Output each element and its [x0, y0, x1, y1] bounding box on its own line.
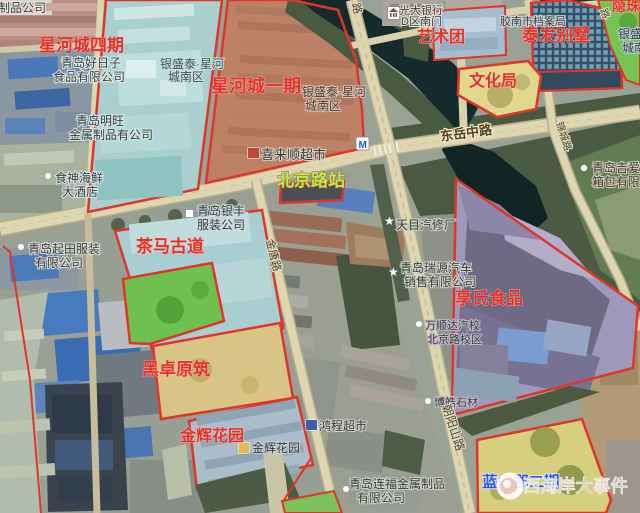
svg-text:青岛明旺: 青岛明旺: [76, 113, 124, 128]
svg-text:有限公司: 有限公司: [35, 256, 83, 270]
svg-text:城南: 城南: [622, 40, 640, 55]
svg-text:青岛瑞源汽车: 青岛瑞源汽车: [400, 260, 472, 275]
svg-text:万顺达汽校: 万顺达汽校: [425, 318, 480, 332]
svg-text:金属制品有公司: 金属制品有公司: [69, 127, 153, 142]
svg-text:文化局: 文化局: [469, 71, 517, 90]
svg-text:北京路校区: 北京路校区: [427, 332, 482, 346]
svg-text:喜来顺超市: 喜来顺超市: [261, 147, 326, 162]
svg-text:青岛吉爱: 青岛吉爱: [592, 160, 640, 175]
svg-text:鸿程超市: 鸿程超市: [319, 418, 367, 433]
svg-text:星河城一期: 星河城一期: [211, 75, 301, 96]
svg-text:西海岸大事件: 西海岸大事件: [523, 476, 628, 496]
svg-text:黑卓原筑: 黑卓原筑: [142, 359, 210, 379]
svg-text:银盛泰·星河: 银盛泰·星河: [160, 56, 224, 71]
svg-text:食品有限公司: 食品有限公司: [53, 69, 125, 84]
svg-text:享氏食品: 享氏食品: [455, 288, 523, 308]
svg-text:D区南门: D区南门: [401, 14, 442, 28]
svg-text:青岛银丰: 青岛银丰: [197, 203, 245, 218]
svg-text:食神海鲜: 食神海鲜: [55, 170, 103, 185]
svg-text:金辉花园: 金辉花园: [179, 426, 244, 445]
svg-text:青岛好日子: 青岛好日子: [61, 55, 121, 70]
svg-text:M: M: [359, 140, 367, 151]
svg-text:天目汽修厂: 天目汽修厂: [396, 217, 456, 232]
svg-text:北京路站: 北京路站: [277, 170, 345, 190]
svg-text:星河城四期: 星河城四期: [39, 36, 124, 55]
svg-text:★: ★: [388, 265, 399, 279]
svg-text:制品公司: 制品公司: [0, 1, 46, 15]
svg-text:银盛泰·星河: 银盛泰·星河: [302, 84, 366, 99]
svg-text:★: ★: [384, 214, 395, 228]
svg-text:隐珠: 隐珠: [612, 0, 640, 14]
svg-text:艺术团: 艺术团: [417, 27, 465, 46]
svg-text:大酒店: 大酒店: [62, 185, 98, 199]
svg-text:金辉花园: 金辉花园: [252, 440, 300, 455]
svg-text:光大银行: 光大银行: [399, 3, 443, 17]
svg-text:青岛起田服装: 青岛起田服装: [28, 241, 100, 256]
svg-text:银盛: 银盛: [618, 26, 640, 41]
svg-text:销售有限公司: 销售有限公司: [404, 274, 476, 289]
svg-text:城南区: 城南区: [305, 98, 341, 113]
svg-text:城南区: 城南区: [168, 69, 204, 84]
svg-text:有限公司: 有限公司: [357, 491, 405, 505]
svg-text:泰发别墅: 泰发别墅: [522, 25, 590, 45]
svg-text:青岛连福金属制品: 青岛连福金属制品: [349, 476, 445, 491]
svg-text:茶马古道: 茶马古道: [136, 236, 204, 256]
svg-text:箱包有限公: 箱包有限公: [592, 174, 640, 189]
svg-text:服装公司: 服装公司: [197, 218, 245, 232]
